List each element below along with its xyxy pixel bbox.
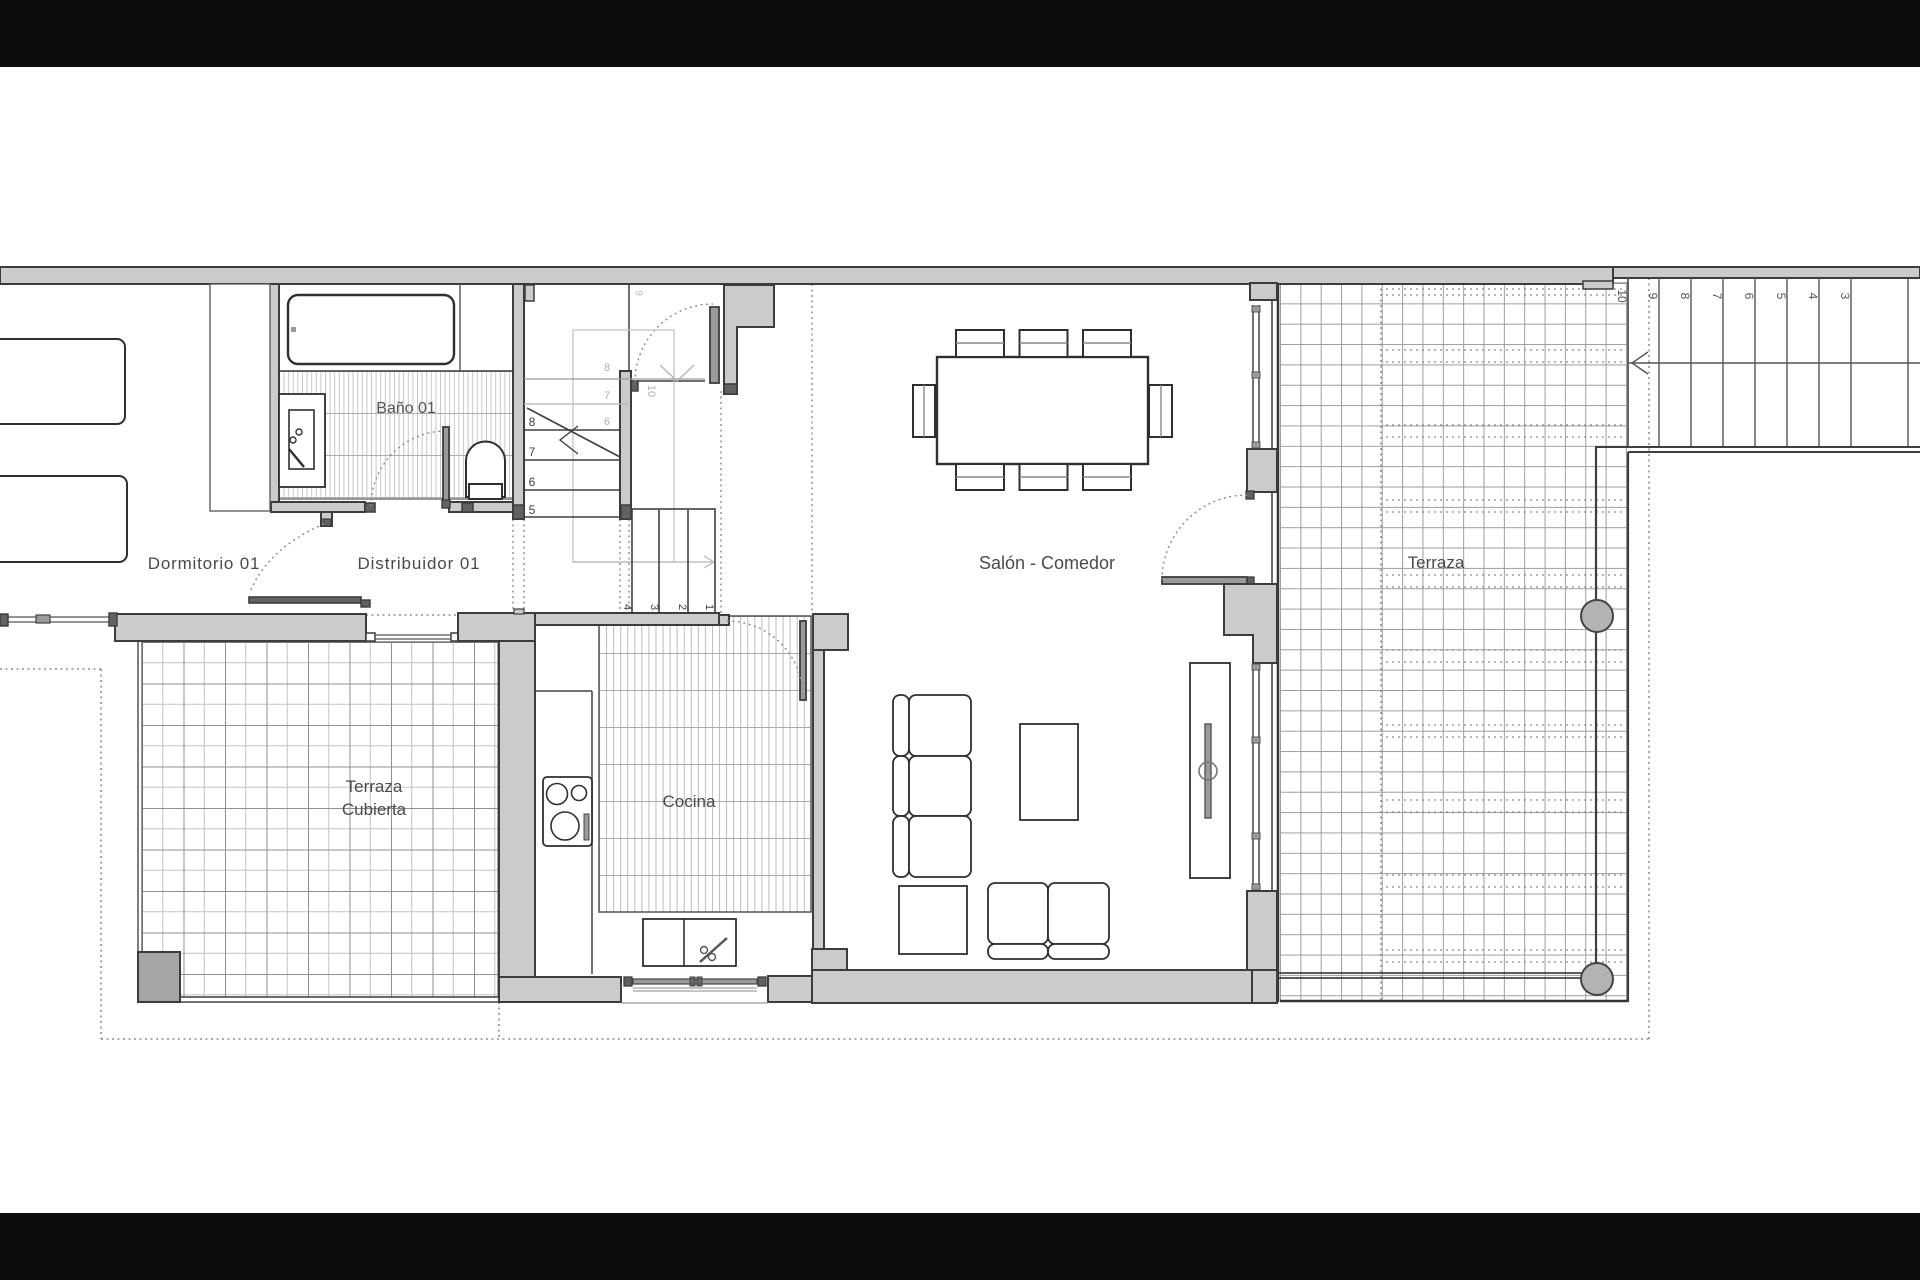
svg-text:6: 6 [604,416,610,428]
svg-text:6: 6 [529,475,536,489]
svg-text:Cubierta: Cubierta [342,800,407,819]
svg-text:3: 3 [1838,293,1852,300]
svg-text:10: 10 [1615,289,1629,303]
svg-text:7: 7 [604,390,610,402]
svg-text:8: 8 [604,362,610,374]
svg-text:4: 4 [1806,293,1820,300]
svg-text:2: 2 [676,604,688,610]
svg-text:1: 1 [703,604,715,610]
svg-text:6: 6 [1742,293,1756,300]
svg-text:4: 4 [621,604,633,610]
svg-text:Cocina: Cocina [663,792,716,811]
svg-text:9: 9 [1646,293,1660,300]
svg-text:10: 10 [645,385,657,397]
svg-text:Terraza: Terraza [1408,553,1465,572]
svg-text:Distribuidor 01: Distribuidor 01 [357,554,480,573]
svg-text:8: 8 [1678,293,1692,300]
svg-text:Salón - Comedor: Salón - Comedor [979,553,1115,573]
svg-text:8: 8 [529,415,536,429]
svg-text:7: 7 [529,445,536,459]
svg-text:3: 3 [648,604,660,610]
svg-text:Baño 01: Baño 01 [376,400,436,417]
svg-text:7: 7 [1710,293,1724,300]
svg-text:5: 5 [529,503,536,517]
svg-text:9: 9 [633,290,644,296]
svg-text:Dormitorio 01: Dormitorio 01 [148,554,260,573]
svg-text:5: 5 [1774,293,1788,300]
svg-text:Terraza: Terraza [346,777,403,796]
